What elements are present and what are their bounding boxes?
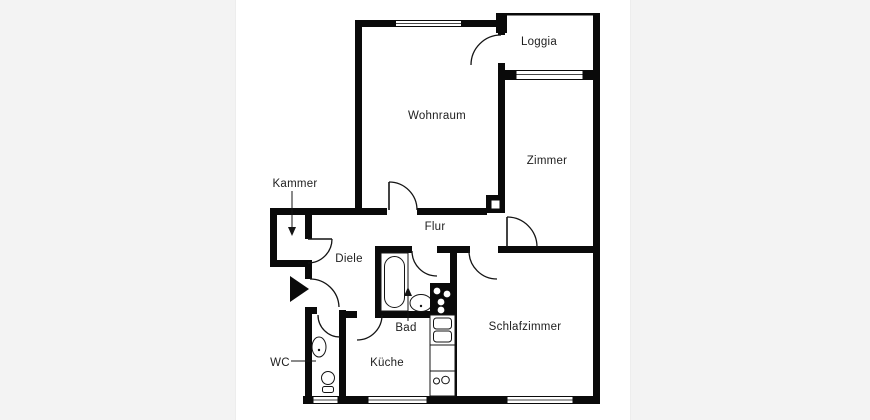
wall-segment [305,307,312,403]
fixtures [290,253,455,396]
wall-segment [339,310,346,403]
door-schlafzimmer [469,251,497,279]
pillar-core [492,201,500,209]
window [396,21,462,27]
loggia-parapet-line [505,13,595,16]
room-label-flur: Flur [425,221,446,233]
floor-plan-drawing: Loggia Wohnraum Zimmer Kammer Flur Diele… [0,0,870,420]
floor-plan-page: Loggia Wohnraum Zimmer Kammer Flur Diele… [0,0,870,420]
stove-icon [430,283,455,315]
entrance-arrow-icon [290,276,309,302]
window [507,397,573,404]
toilet-icon [322,372,335,393]
room-label-bad: Bad [395,322,416,334]
bathtub-icon [381,253,408,311]
wall-segment [375,311,435,318]
wall-segment [270,208,277,267]
room-label-loggia: Loggia [521,36,557,48]
door-kammer [308,239,332,263]
room-label-diele: Diele [335,253,362,265]
door-zimmer [507,217,537,247]
wall-segment [498,246,600,253]
room-label-schlafzimmer: Schlafzimmer [489,321,562,333]
door-bad [412,251,437,276]
window [516,71,583,80]
wc-sink-icon [312,337,326,357]
wall-segment [355,20,362,215]
wall-segment [375,246,412,253]
wall-segment [305,307,317,314]
wall-segment [498,27,505,35]
door-wc [318,315,340,337]
wall-segment [505,70,517,80]
room-label-zimmer: Zimmer [527,155,567,167]
window [368,397,427,404]
room-label-wc: WC [270,357,290,369]
room-labels: Loggia Wohnraum Zimmer Kammer Flur Diele… [270,36,567,369]
kitchen-counter [430,345,455,396]
wall-segment [346,311,357,318]
wall-segment [583,70,595,80]
room-label-kueche: Küche [370,357,404,369]
door-kueche [357,315,382,340]
bad-sink-icon [410,295,432,312]
wall-segment [270,208,387,215]
window [313,397,338,404]
room-label-kammer: Kammer [273,178,318,190]
room-label-wohnraum: Wohnraum [408,110,466,122]
door-wohnraum [389,182,417,210]
kitchen-sink-icon [430,315,455,345]
door-loggia [471,35,501,65]
wall-segment [417,208,487,215]
door-entrance [310,279,339,307]
wall-segment [305,215,312,239]
wall-segment [498,63,505,195]
